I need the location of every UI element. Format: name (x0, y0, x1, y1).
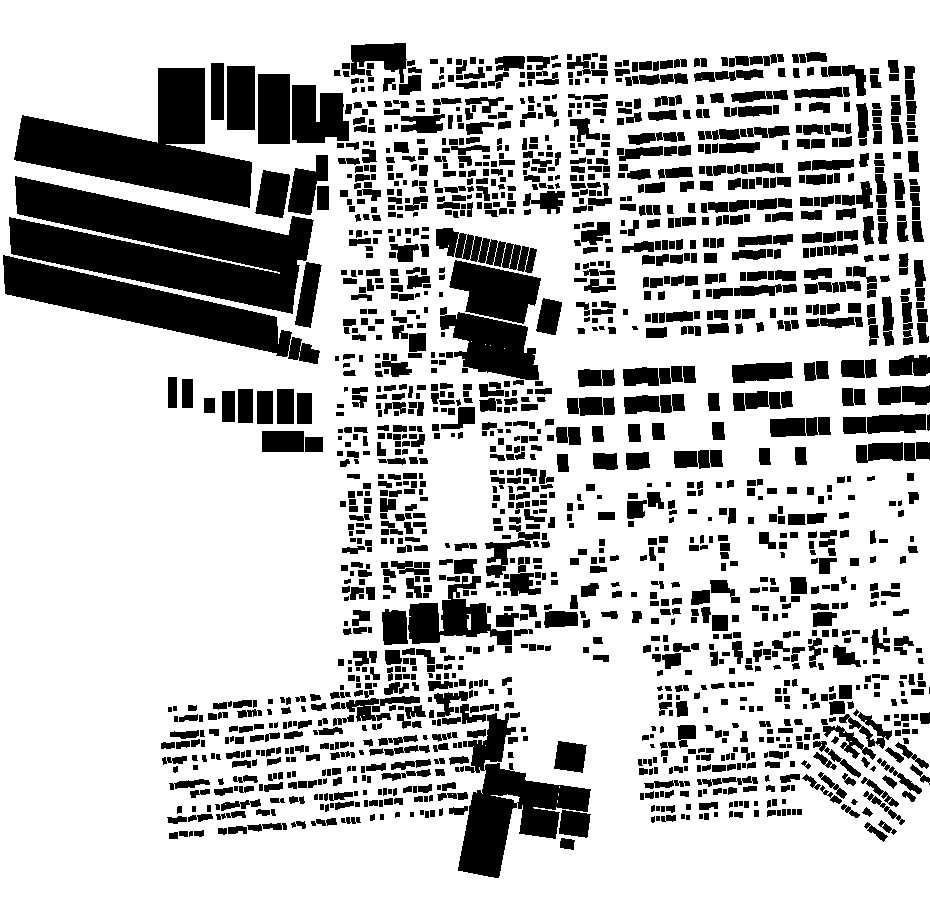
district-central-slab-cluster (449, 260, 562, 381)
district-corner-rowhouses (794, 702, 930, 845)
district-mid-left-large-blocks (382, 599, 488, 645)
map-canvas (0, 0, 930, 924)
district-north-east-rowhouses (625, 50, 870, 339)
district-mid-apartment-rows (554, 357, 930, 473)
district-dock-warehouse-slabs (3, 115, 297, 354)
district-south-industrial-works (458, 718, 591, 879)
figure-ground-map (0, 0, 930, 924)
district-right-edge-rowhouses (854, 59, 930, 365)
district-south-of-docks-cluster (168, 377, 323, 452)
district-mid-right-fabric (556, 473, 924, 668)
district-south-right-rowhouses (638, 750, 802, 823)
